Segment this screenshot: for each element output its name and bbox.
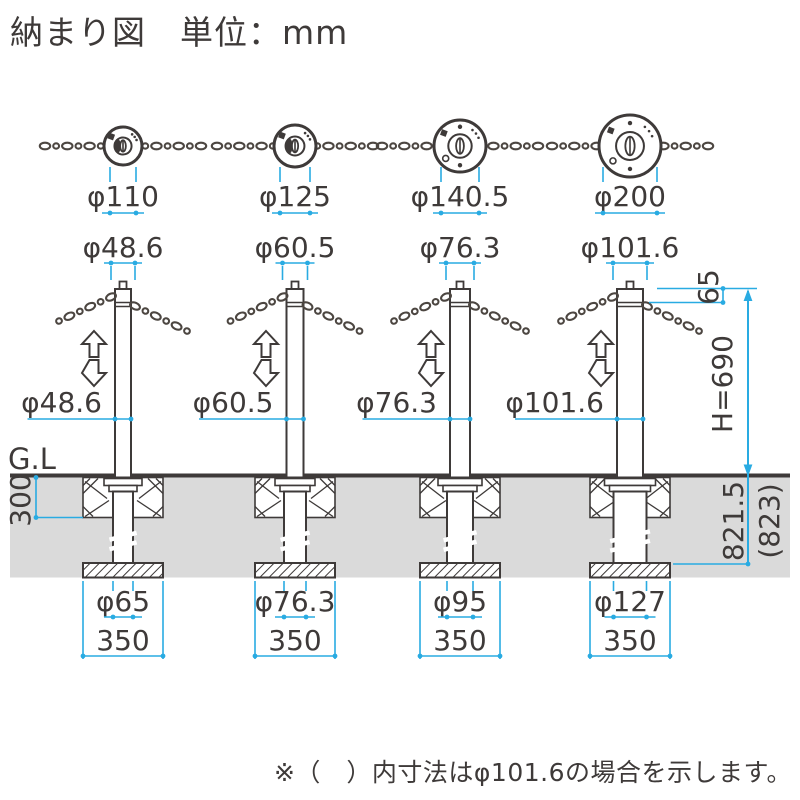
chain-link [165,143,171,148]
top-view-dia-label: φ125 [259,180,331,213]
dim-dot [305,261,310,266]
up-arrow-icon [82,331,106,357]
chain-link [356,327,364,334]
flange-plate [104,479,142,486]
dim-dot [278,211,283,216]
top-view-dia-label: φ140.5 [411,180,510,213]
base-plate [83,563,163,578]
dim-dot [284,417,289,422]
post-body [115,289,131,478]
pipe-dia-mid-label: φ76.3 [356,386,437,419]
chain-link [682,321,694,331]
buried-pipe [284,492,306,564]
post [557,282,703,478]
chain-link [335,317,343,324]
arc-text-dot [644,126,647,129]
dim-dot [109,261,114,266]
arc-text-dot [131,133,134,136]
total-length-label: 821.5 [717,481,750,561]
top-dot [458,125,462,129]
dim-dot [108,211,113,216]
buried-pipe [113,492,133,564]
chain-link [419,301,431,311]
base-width-label: 350 [603,624,656,657]
dim-dot [611,615,616,620]
arc-text-dot [309,138,312,141]
arrow-up [744,289,753,301]
arc-text-dot [133,136,136,139]
dimensions: φ110φ48.6φ48.6φ65350 [21,167,165,659]
chain-link [314,307,322,314]
base-width-label: 350 [96,624,149,657]
chain-link [654,307,662,314]
dim-dot [280,261,285,266]
chain-link [662,311,674,321]
ground-level-label: G.L [8,442,56,476]
top-view [377,120,543,172]
post-body [287,289,304,478]
base-plate [590,563,670,578]
chain-link [522,327,530,334]
dimensions: φ125φ60.5φ60.5φ76.3350 [193,167,338,659]
chain-link [323,143,333,150]
arc-text-dot [471,129,474,132]
chain-link [586,301,598,311]
top-view-dia-label: φ110 [87,180,159,213]
dim-dot [161,654,166,659]
chain-link [509,321,521,331]
chain-link [488,143,498,150]
dim-dot [601,211,606,216]
chain-link [703,143,713,150]
chain-left-icon [390,292,452,325]
chain-link [235,311,247,321]
dim-dot [471,615,476,620]
dim-dot [134,211,139,216]
dim-dot [655,211,660,216]
anchor-dia-label: φ95 [433,585,487,618]
arc-text-dot [651,135,654,138]
dim-dot [282,615,287,620]
chain-link [187,143,193,148]
pipe-dia-top-label: φ48.6 [83,231,164,264]
chain-link [97,298,105,305]
dim-dot [611,261,616,266]
base-width-label: 350 [268,624,321,657]
cap-offset-label: 65 [692,269,725,305]
dim-dot [645,261,650,266]
pipe-dia-top-label: φ101.6 [581,231,680,264]
chain-link [174,143,184,150]
chain-link [76,143,82,148]
dim-dot [668,654,673,659]
post [390,282,530,478]
chain-link [413,143,419,148]
chain-link [84,143,94,150]
dim-dot [301,417,306,422]
chain-link [248,143,254,148]
dim-dot [418,654,423,659]
chain-link [256,301,268,311]
dim-dot [477,211,482,216]
chain-link [489,311,501,321]
base-width-label: 350 [433,624,486,657]
chain-link [55,317,63,324]
arc-text-dot [477,136,480,139]
page: φ110φ48.6φ48.6φ65350φ125φ60.5φ60.5φ76.33… [0,0,800,800]
chain-link [53,143,59,148]
down-arrow-icon [589,360,613,386]
chain-link [421,143,431,150]
chain-left-icon [227,292,289,325]
chain-link [390,317,398,324]
post-body [450,289,470,478]
arc-text-dot [475,132,478,135]
chain-link [694,143,700,148]
chain-link [212,143,222,150]
chain-link [84,301,96,311]
chain-right-icon [641,301,703,335]
flange-plate [275,479,315,486]
dim-dot [588,654,593,659]
page-title: 納まり図 単位：mm [10,6,348,54]
chain-link [411,308,419,315]
down-arrow-icon [419,360,443,386]
up-arrow-icon [419,331,443,357]
height-label: H=690 [706,335,739,433]
dim-dot [111,615,116,620]
dim-dot [129,417,134,422]
chain-link [183,327,191,334]
pipe-dia-mid-label: φ60.5 [193,386,274,419]
chain-link [583,143,589,148]
top-view-dia-label: φ200 [594,180,666,213]
chain-link [501,317,509,324]
chain-link [557,317,565,324]
chain-link [196,143,206,150]
chain-link [578,308,586,315]
keyhole-shade [114,139,120,153]
dim-dot [641,417,646,422]
chain-link [268,298,276,305]
chain-link [142,307,150,314]
chain-link [502,143,508,148]
top-view [40,127,206,165]
dim-dot [644,615,649,620]
flange-plate [605,479,656,486]
arc-text-dot [135,139,138,142]
keyhole-shade [286,138,293,153]
chain-link [524,143,530,148]
chain-link [533,143,543,150]
anchor-dia-label: φ76.3 [255,585,336,618]
dim-dot [308,211,313,216]
chain-link [346,143,356,150]
base-plate [255,563,335,578]
dim-dot [448,417,453,422]
dim-dot [131,615,136,620]
chain-link [481,307,489,314]
chain-link [62,143,72,150]
dim-dot [445,615,450,620]
dim-dot [439,211,444,216]
arc-text-dot [307,135,310,138]
post-body [617,289,643,478]
pipe-dia-mid-label: φ48.6 [21,386,102,419]
flange-plate [438,479,482,486]
chain-link [390,143,396,148]
total-length-paren-label: (823) [753,483,786,558]
chain-link [150,311,162,321]
chain-link [511,143,521,150]
chain-left-icon [55,292,117,325]
arc-text-dot [304,132,307,135]
arc-text-dot [648,130,651,133]
dim-dot [333,654,338,659]
bollard-column-2: φ125φ60.5φ60.5φ76.3350 [193,125,379,659]
bottom-dot [458,163,462,167]
up-arrow-icon [254,331,278,357]
top-view [547,115,713,177]
down-arrow-icon [82,360,106,386]
bottom-dot [628,167,632,171]
chain-link [337,143,343,148]
chain-link [681,143,691,150]
chain-link [599,298,607,305]
chain-link [162,317,170,324]
chain-link [76,308,84,315]
chain-link [399,143,409,150]
chain-link [40,143,50,150]
dim-dot [615,417,620,422]
bollard-column-1: φ110φ48.6φ48.6φ65350 [21,127,206,659]
up-arrow-icon [589,331,613,357]
chain-left-icon [557,292,619,325]
footnote: ※（ ）内寸法はφ101.6の場合を示します。 [274,753,792,789]
chain-link [547,143,557,150]
base-plate [420,563,500,578]
chain-link [432,298,440,305]
dim-dot [498,654,503,659]
chain-link [256,143,266,150]
pipe-dia-top-label: φ76.3 [420,231,501,264]
chain-link [359,143,365,148]
chain-link [569,143,579,150]
top-dot [628,121,632,125]
post [227,282,364,478]
dim-dot [444,261,449,266]
chain-right-icon [468,301,530,335]
chain-link [248,308,256,315]
chain-link [695,327,703,334]
chain-link [170,321,182,331]
chain-link [151,143,161,150]
chain-link [227,317,235,324]
dimensions: φ140.5φ76.3φ76.3φ95350 [356,167,509,659]
embed-depth-label: 300 [4,473,37,526]
buried-pipe [614,492,647,564]
down-arrow-icon [254,360,278,386]
buried-pipe [447,492,473,564]
chain-link [560,143,566,148]
chain-link [63,311,75,321]
chain-link [322,311,334,321]
installation-diagram: φ110φ48.6φ48.6φ65350φ125φ60.5φ60.5φ76.33… [0,0,800,800]
pipe-dia-top-label: φ60.5 [255,231,336,264]
chain-link [674,317,682,324]
dim-dot [468,417,473,422]
anchor-dia-label: φ127 [594,585,666,618]
pipe-dia-mid-label: φ101.6 [505,386,604,419]
dimensions: φ200φ101.6φ101.6φ127350 [505,167,679,659]
post [55,282,191,478]
chain-link [672,143,678,148]
dim-dot [253,654,258,659]
dim-dot [81,654,86,659]
dim-dot [133,261,138,266]
chain-link [565,311,577,321]
chain-link [225,143,231,148]
chain-link [398,311,410,321]
dim-dot [472,261,477,266]
chain-right-icon [301,301,363,335]
anchor-dia-label: φ65 [96,585,150,618]
top-view [212,125,378,167]
chain-link [234,143,244,150]
dim-dot [113,417,118,422]
chain-right-icon [129,301,191,335]
dim-dot [304,615,309,620]
chain-link [343,321,355,331]
